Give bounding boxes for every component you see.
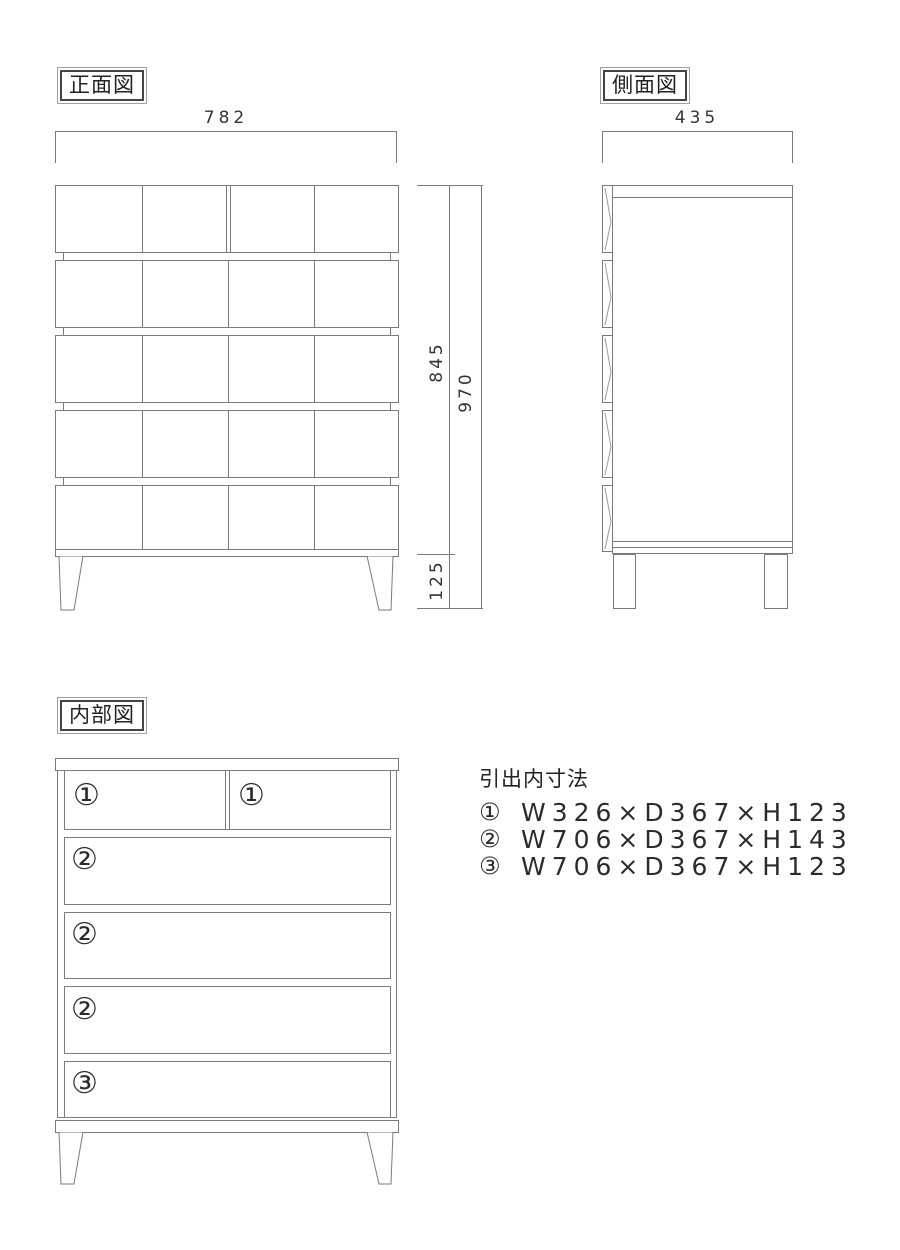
internal-view-label-box: 内部図 xyxy=(57,697,147,734)
internal-partition-line xyxy=(229,770,230,830)
drawer-groove xyxy=(142,261,143,327)
side-right-leg xyxy=(764,554,788,609)
dimension-item-marker: ② xyxy=(479,827,521,851)
side-drawer-front-1 xyxy=(602,185,613,253)
side-depth-dim-tick-left xyxy=(602,131,603,163)
front-view-label-box: 正面図 xyxy=(57,67,147,104)
front-view-label: 正面図 xyxy=(60,70,144,101)
gap-tick xyxy=(63,403,64,410)
gap-tick xyxy=(63,253,64,260)
height-dim-tick-top xyxy=(417,185,483,186)
leg-height-dimension: 125 xyxy=(427,545,447,615)
internal-body xyxy=(57,770,397,1118)
drawer-groove xyxy=(314,486,315,549)
side-drawer-front-2 xyxy=(602,260,613,328)
drawer-groove xyxy=(142,486,143,549)
drawer-groove xyxy=(228,411,229,477)
side-depth-dimension: 435 xyxy=(637,108,757,128)
drawer-dimensions-title: 引出内寸法 xyxy=(479,763,589,793)
drawing-canvas: 正面図 782 xyxy=(0,0,900,1250)
gap-tick xyxy=(63,478,64,485)
dimension-item-value: W326×D367×H123 xyxy=(521,800,853,825)
internal-right-wall xyxy=(390,770,391,1118)
internal-view-label: 内部図 xyxy=(60,700,144,731)
drawer-groove xyxy=(228,261,229,327)
side-drawer-front-3 xyxy=(602,335,613,403)
compartment-marker: ② xyxy=(71,995,98,1025)
drawer-groove xyxy=(228,486,229,549)
internal-left-leg xyxy=(58,1132,85,1185)
internal-bottom-strip xyxy=(55,1120,399,1133)
side-drawer-front-4 xyxy=(602,410,613,478)
dimension-item-marker: ① xyxy=(479,800,521,824)
internal-partition-line xyxy=(225,770,226,830)
drawer-groove xyxy=(314,336,315,402)
compartment-marker: ② xyxy=(71,920,98,950)
internal-shelf-4 xyxy=(64,1053,391,1062)
side-view-label: 側面図 xyxy=(603,70,687,101)
dimension-item-value: W706×D367×H123 xyxy=(521,854,853,879)
front-drawer-row-5 xyxy=(55,485,399,550)
compartment-marker: ① xyxy=(238,781,265,811)
side-bottom-board-line2 xyxy=(612,547,793,548)
front-drawer-row-2 xyxy=(55,260,399,328)
drawer-groove xyxy=(314,186,315,252)
front-width-dim-tick-right xyxy=(396,131,397,163)
gap-tick xyxy=(390,253,391,260)
total-height-dimension: 970 xyxy=(456,357,476,427)
front-drawer-row-1 xyxy=(55,185,399,253)
front-width-dim-line xyxy=(55,131,397,132)
drawer-groove xyxy=(142,411,143,477)
side-view-label-box: 側面図 xyxy=(600,67,690,104)
front-width-dim-tick-left xyxy=(55,131,56,163)
body-height-dimension: 845 xyxy=(427,327,447,397)
side-body xyxy=(612,185,793,554)
gap-tick xyxy=(390,403,391,410)
total-height-dim-line xyxy=(481,185,482,608)
front-width-dimension: 782 xyxy=(166,108,286,128)
gap-tick xyxy=(390,478,391,485)
dimension-item-value: W706×D367×H143 xyxy=(521,827,853,852)
compartment-marker: ③ xyxy=(71,1069,98,1099)
front-right-leg xyxy=(365,556,394,611)
compartment-marker: ② xyxy=(71,845,98,875)
gap-tick xyxy=(63,328,64,335)
gap-tick xyxy=(390,328,391,335)
internal-shelf-1 xyxy=(64,829,391,838)
drawer-split-line xyxy=(230,186,231,252)
drawer-dimensions-list: ① W326×D367×H123 ② W706×D367×H143 ③ W706… xyxy=(479,799,853,880)
internal-shelf-2 xyxy=(64,904,391,913)
drawer-groove xyxy=(142,186,143,252)
drawer-split-line xyxy=(226,186,227,252)
side-bottom-board-line xyxy=(612,541,793,542)
compartment-marker: ① xyxy=(73,781,100,811)
front-drawer-row-4 xyxy=(55,410,399,478)
drawer-groove xyxy=(314,411,315,477)
internal-shelf-3 xyxy=(64,978,391,987)
body-height-dim-line xyxy=(449,185,450,608)
front-drawer-row-3 xyxy=(55,335,399,403)
side-top-board-line xyxy=(612,197,793,198)
front-base-strip xyxy=(55,549,399,557)
dimension-item: ③ W706×D367×H123 xyxy=(479,853,853,879)
side-depth-dim-tick-right xyxy=(792,131,793,163)
side-depth-dim-line xyxy=(602,131,793,132)
side-drawer-front-5 xyxy=(602,485,613,552)
internal-right-leg xyxy=(365,1132,394,1185)
internal-left-wall xyxy=(64,770,65,1118)
side-left-leg xyxy=(613,554,636,609)
dimension-item: ① W326×D367×H123 xyxy=(479,799,853,825)
dimension-item-marker: ③ xyxy=(479,854,521,878)
drawer-groove xyxy=(314,261,315,327)
drawer-groove xyxy=(228,336,229,402)
drawer-groove xyxy=(142,336,143,402)
dimension-item: ② W706×D367×H143 xyxy=(479,826,853,852)
front-left-leg xyxy=(58,556,85,611)
